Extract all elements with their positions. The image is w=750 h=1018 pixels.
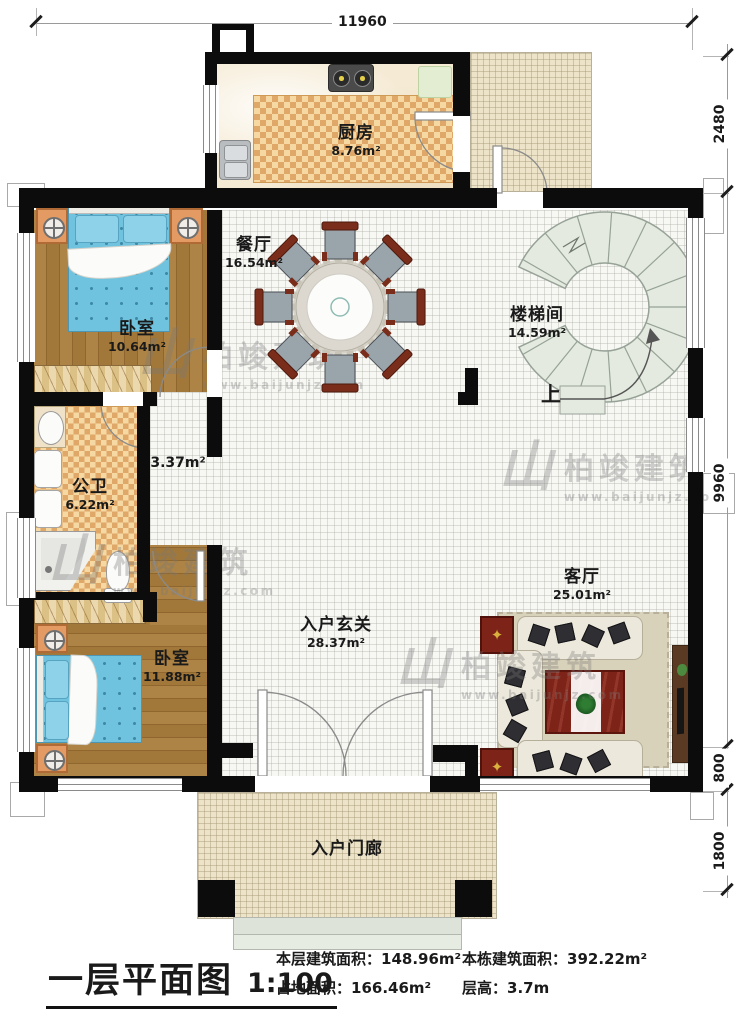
wall-segment <box>137 406 150 592</box>
room-label-bedroom-top: 卧室 10.64m² <box>108 320 166 354</box>
room-area: 25.01m² <box>553 588 611 602</box>
door-opening <box>255 776 430 792</box>
exterior-ledge <box>703 178 724 234</box>
dim-right-lower: 800 <box>711 748 729 787</box>
plan-title: 一层平面图 <box>48 952 233 1003</box>
wall-segment <box>207 397 222 457</box>
sink-basin <box>224 145 248 161</box>
wall-segment <box>143 392 157 406</box>
wall-segment <box>207 545 222 776</box>
porch-pillar <box>198 880 235 917</box>
tv-icon <box>677 688 684 735</box>
chimney-void <box>220 30 246 52</box>
lamp-icon <box>43 217 65 239</box>
room-label-corridor: 3.37m² <box>150 455 205 471</box>
dim-right-middle: 9960 <box>711 459 729 508</box>
window <box>17 233 36 362</box>
bathroom-vanity <box>34 406 66 448</box>
room-area: 14.59m² <box>508 326 566 340</box>
window <box>480 778 650 792</box>
room-name: 厨房 <box>331 124 380 144</box>
lamp-icon <box>44 630 65 651</box>
bath-cabinet <box>34 450 62 488</box>
room-label-kitchen: 厨房 8.76m² <box>331 124 380 158</box>
door-opening <box>103 392 143 406</box>
wall-segment <box>19 592 150 600</box>
kitchen-counter-board <box>418 66 452 98</box>
door-opening <box>453 116 470 172</box>
room-name: 卧室 <box>108 320 166 340</box>
window <box>17 518 36 598</box>
stat-label: 本栋建筑面积： <box>462 950 567 968</box>
double-bed <box>36 655 142 743</box>
wall-segment <box>207 743 253 758</box>
window <box>686 218 705 348</box>
nightstand <box>36 744 68 773</box>
room-label-living: 客厅 25.01m² <box>553 568 611 602</box>
burner-icon <box>354 70 371 87</box>
exterior-ledge <box>690 792 714 820</box>
stat-label: 占地面积： <box>276 979 351 997</box>
room-name: 楼梯间 <box>508 306 566 326</box>
room-label-bathroom: 公卫 6.22m² <box>65 478 114 512</box>
caption-stat: 本栋建筑面积：392.22m² <box>462 948 647 969</box>
room-area: 6.22m² <box>65 498 114 512</box>
lamp-icon <box>44 750 65 771</box>
room-name: 卧室 <box>143 650 201 670</box>
room-area: 16.54m² <box>225 256 283 270</box>
room-label-dining: 餐厅 16.54m² <box>225 236 283 270</box>
sofa-pillow <box>554 622 575 643</box>
wall-segment <box>543 188 703 208</box>
coffee-table <box>545 670 625 734</box>
column <box>458 392 478 405</box>
floor-plan-page: { "rooms": { "kitchen": {"label": "厨房", … <box>0 0 750 1018</box>
stat-value: 166.46m² <box>351 979 431 997</box>
window <box>203 85 219 153</box>
stat-value: 392.22m² <box>567 950 647 968</box>
wall-segment <box>19 188 497 208</box>
extension-line <box>692 8 693 50</box>
side-terrace-floor <box>470 52 592 192</box>
room-label-porch: 入户门廊 <box>311 840 383 860</box>
room-label-bedroom-bottom: 卧室 11.88m² <box>143 650 201 684</box>
room-area: 10.64m² <box>108 340 166 354</box>
lamp-icon <box>177 217 199 239</box>
porch-pillar <box>455 880 492 917</box>
shower-drain-icon <box>45 566 52 573</box>
nightstand <box>36 208 68 244</box>
room-label-stairwell: 楼梯间 14.59m² <box>508 306 566 340</box>
pillow <box>45 701 69 740</box>
sink-basin <box>224 162 248 178</box>
stat-value: 3.7m <box>507 979 549 997</box>
window <box>17 648 36 752</box>
dim-right-bottom: 1800 <box>711 827 729 876</box>
bed-sheet <box>67 655 98 746</box>
bath-cabinet <box>34 490 62 528</box>
room-area: 28.37m² <box>300 636 372 650</box>
door-opening <box>207 350 222 397</box>
room-name: 入户玄关 <box>300 616 372 636</box>
window <box>686 418 705 472</box>
room-area: 11.88m² <box>143 670 201 684</box>
pillow <box>75 215 119 243</box>
wall-segment <box>207 210 222 350</box>
toilet <box>106 551 130 591</box>
wardrobe <box>34 365 152 394</box>
shower-tray <box>41 538 85 580</box>
room-name: 餐厅 <box>225 236 283 256</box>
stat-label: 层高： <box>462 979 507 997</box>
room-area: 3.37m² <box>150 455 205 471</box>
side-table: ✦ <box>480 616 514 654</box>
caption-stat: 占地面积：166.46m² <box>276 977 431 998</box>
dim-top: 11960 <box>332 14 393 30</box>
room-name: 公卫 <box>65 478 114 498</box>
kitchen-sink <box>219 140 251 180</box>
pillow <box>45 660 69 699</box>
stairs-up-label: 上 <box>541 378 561 407</box>
pillow <box>123 215 167 243</box>
dim-right-top: 2480 <box>711 100 729 149</box>
caption-stat: 本层建筑面积：148.96m² <box>276 948 461 969</box>
washbasin <box>38 411 64 445</box>
porch-step <box>233 917 462 935</box>
double-bed <box>68 205 170 332</box>
room-name: 入户门廊 <box>311 840 383 860</box>
wall-segment <box>143 592 157 622</box>
burner-icon <box>333 70 350 87</box>
room-label-foyer: 入户玄关 28.37m² <box>300 616 372 650</box>
room-name: 客厅 <box>553 568 611 588</box>
headboard <box>37 656 44 742</box>
caption-stat: 层高：3.7m <box>462 977 549 998</box>
stat-value: 148.96m² <box>381 950 461 968</box>
wall-segment <box>465 745 478 790</box>
stove <box>328 64 374 92</box>
plant-icon <box>677 664 687 676</box>
room-area: 8.76m² <box>331 144 380 158</box>
bed-sheet <box>67 243 173 280</box>
nightstand <box>36 624 68 653</box>
wall-segment <box>19 392 103 406</box>
stat-label: 本层建筑面积： <box>276 950 381 968</box>
window <box>58 778 182 792</box>
nightstand <box>170 208 203 244</box>
